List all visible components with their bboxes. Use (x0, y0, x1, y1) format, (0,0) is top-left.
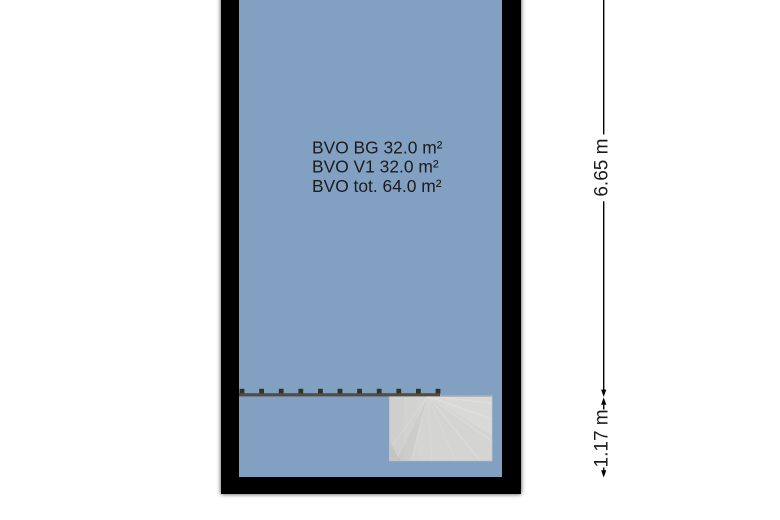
svg-text:1.17 m: 1.17 m (591, 409, 612, 467)
svg-text:BVO BG 32.0 m²: BVO BG 32.0 m² (312, 137, 443, 157)
svg-text:BVO V1 32.0 m²: BVO V1 32.0 m² (312, 157, 439, 177)
svg-text:BVO tot. 64.0 m²: BVO tot. 64.0 m² (312, 176, 442, 196)
svg-text:6.65 m: 6.65 m (591, 139, 612, 197)
